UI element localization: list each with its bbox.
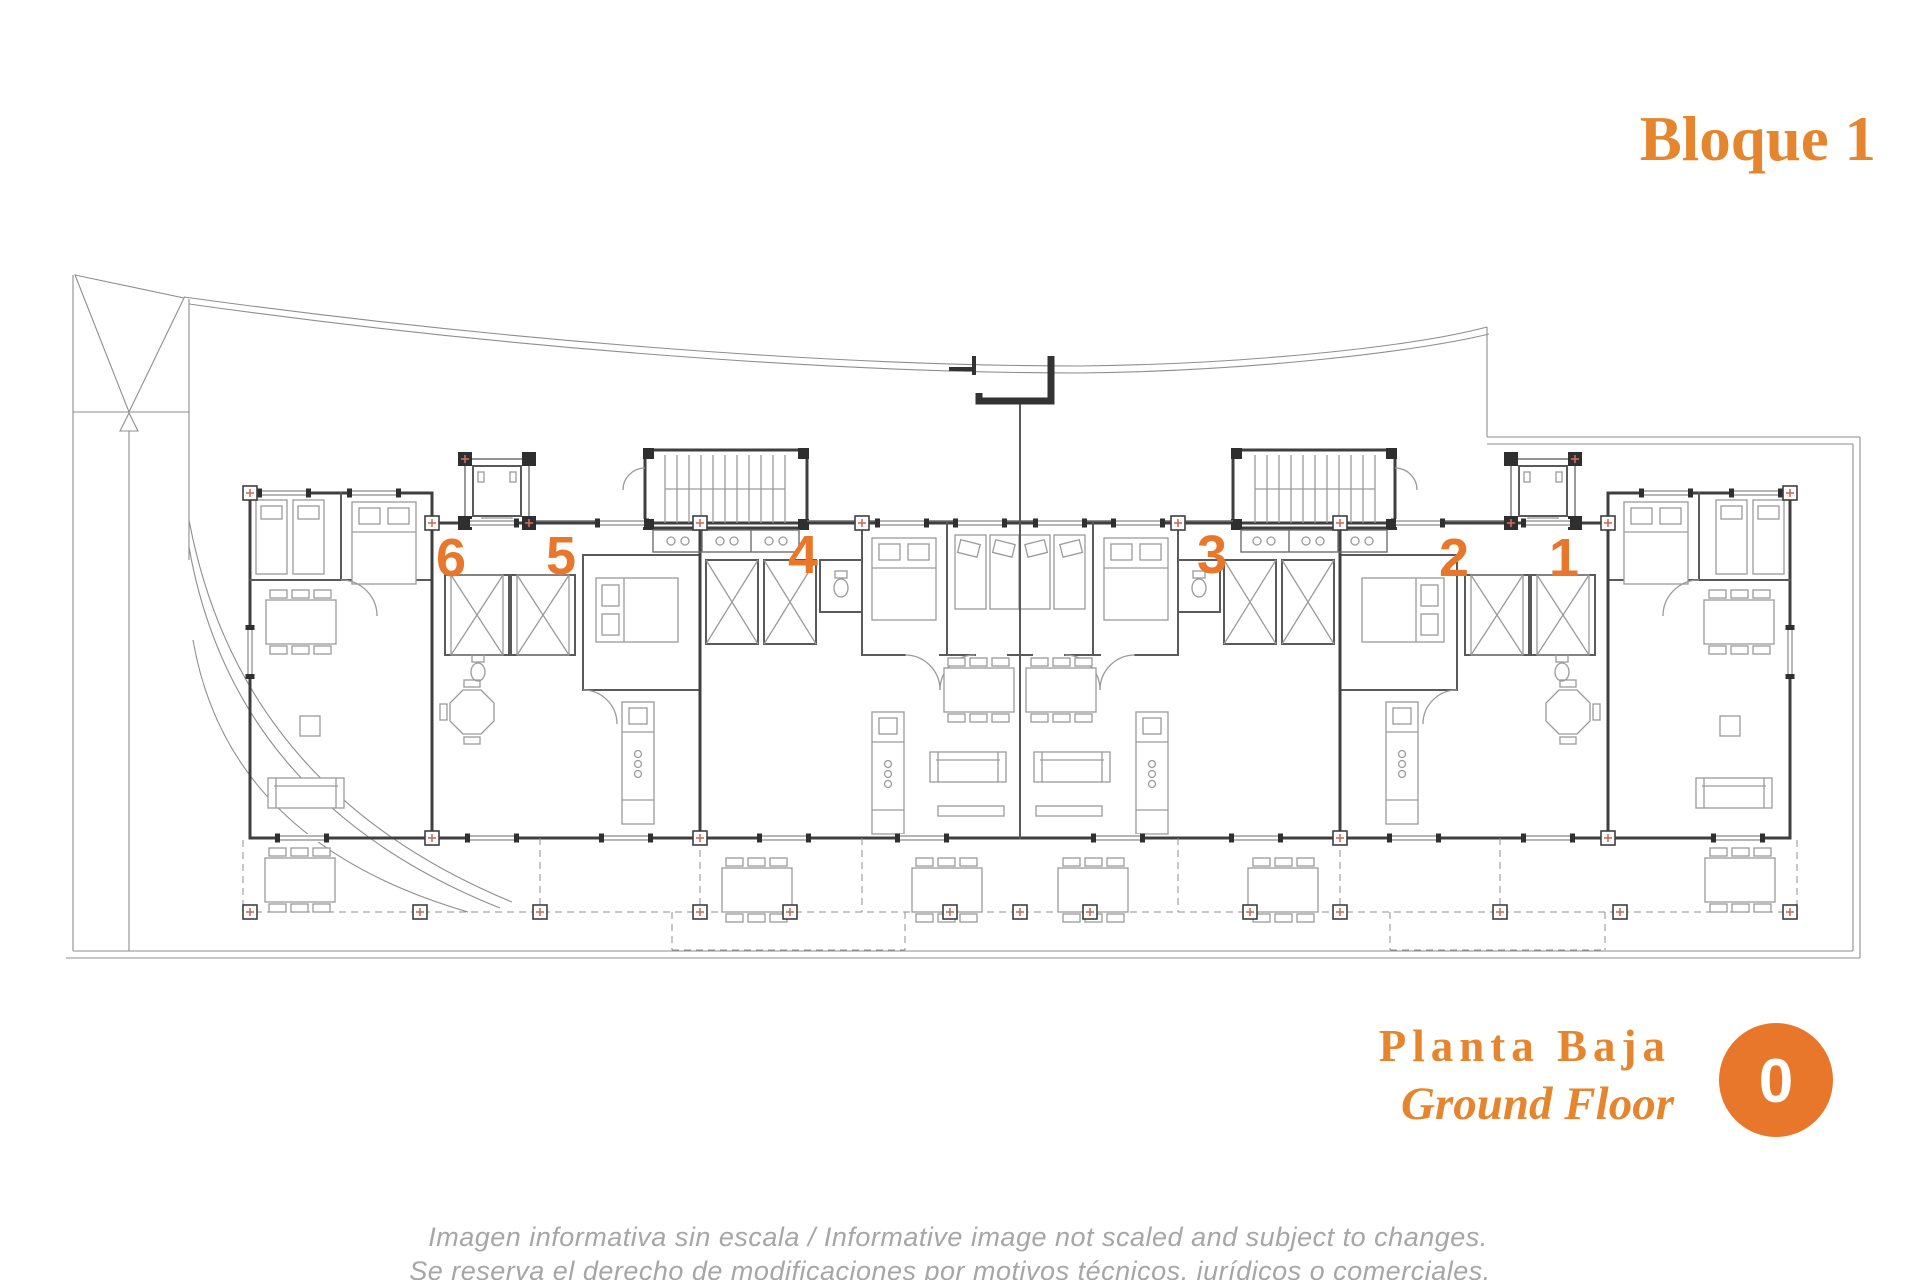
unit-label-4: 4 xyxy=(788,525,818,585)
block-title: Bloque 1 xyxy=(1640,104,1876,174)
building-left-half xyxy=(243,448,1021,922)
entry-canopy xyxy=(949,356,1051,401)
unit-label-5: 5 xyxy=(546,526,576,586)
building-plan xyxy=(243,356,1797,950)
floor-label: Planta Baja Ground Floor 0 xyxy=(1379,1021,1833,1137)
unit-label-3: 3 xyxy=(1197,525,1227,585)
disclaimer-line2: Se reserva el derecho de modificaciones … xyxy=(409,1256,1490,1280)
floor-label-es: Planta Baja xyxy=(1379,1021,1671,1071)
floorplan-page: Bloque 1 6 5 4 3 2 1 Planta Baja Ground … xyxy=(0,0,1920,1280)
building-right-half xyxy=(1019,448,1797,922)
floor-badge-number: 0 xyxy=(1759,1047,1793,1116)
unit-label-1: 1 xyxy=(1549,528,1579,588)
disclaimer: Imagen informativa sin escala / Informat… xyxy=(409,1222,1490,1280)
unit-label-2: 2 xyxy=(1439,528,1469,588)
unit-label-6: 6 xyxy=(436,528,466,588)
floorplan-drawing: Bloque 1 6 5 4 3 2 1 Planta Baja Ground … xyxy=(0,0,1920,1280)
floor-label-en: Ground Floor xyxy=(1401,1078,1675,1130)
disclaimer-line1: Imagen informativa sin escala / Informat… xyxy=(428,1222,1488,1252)
